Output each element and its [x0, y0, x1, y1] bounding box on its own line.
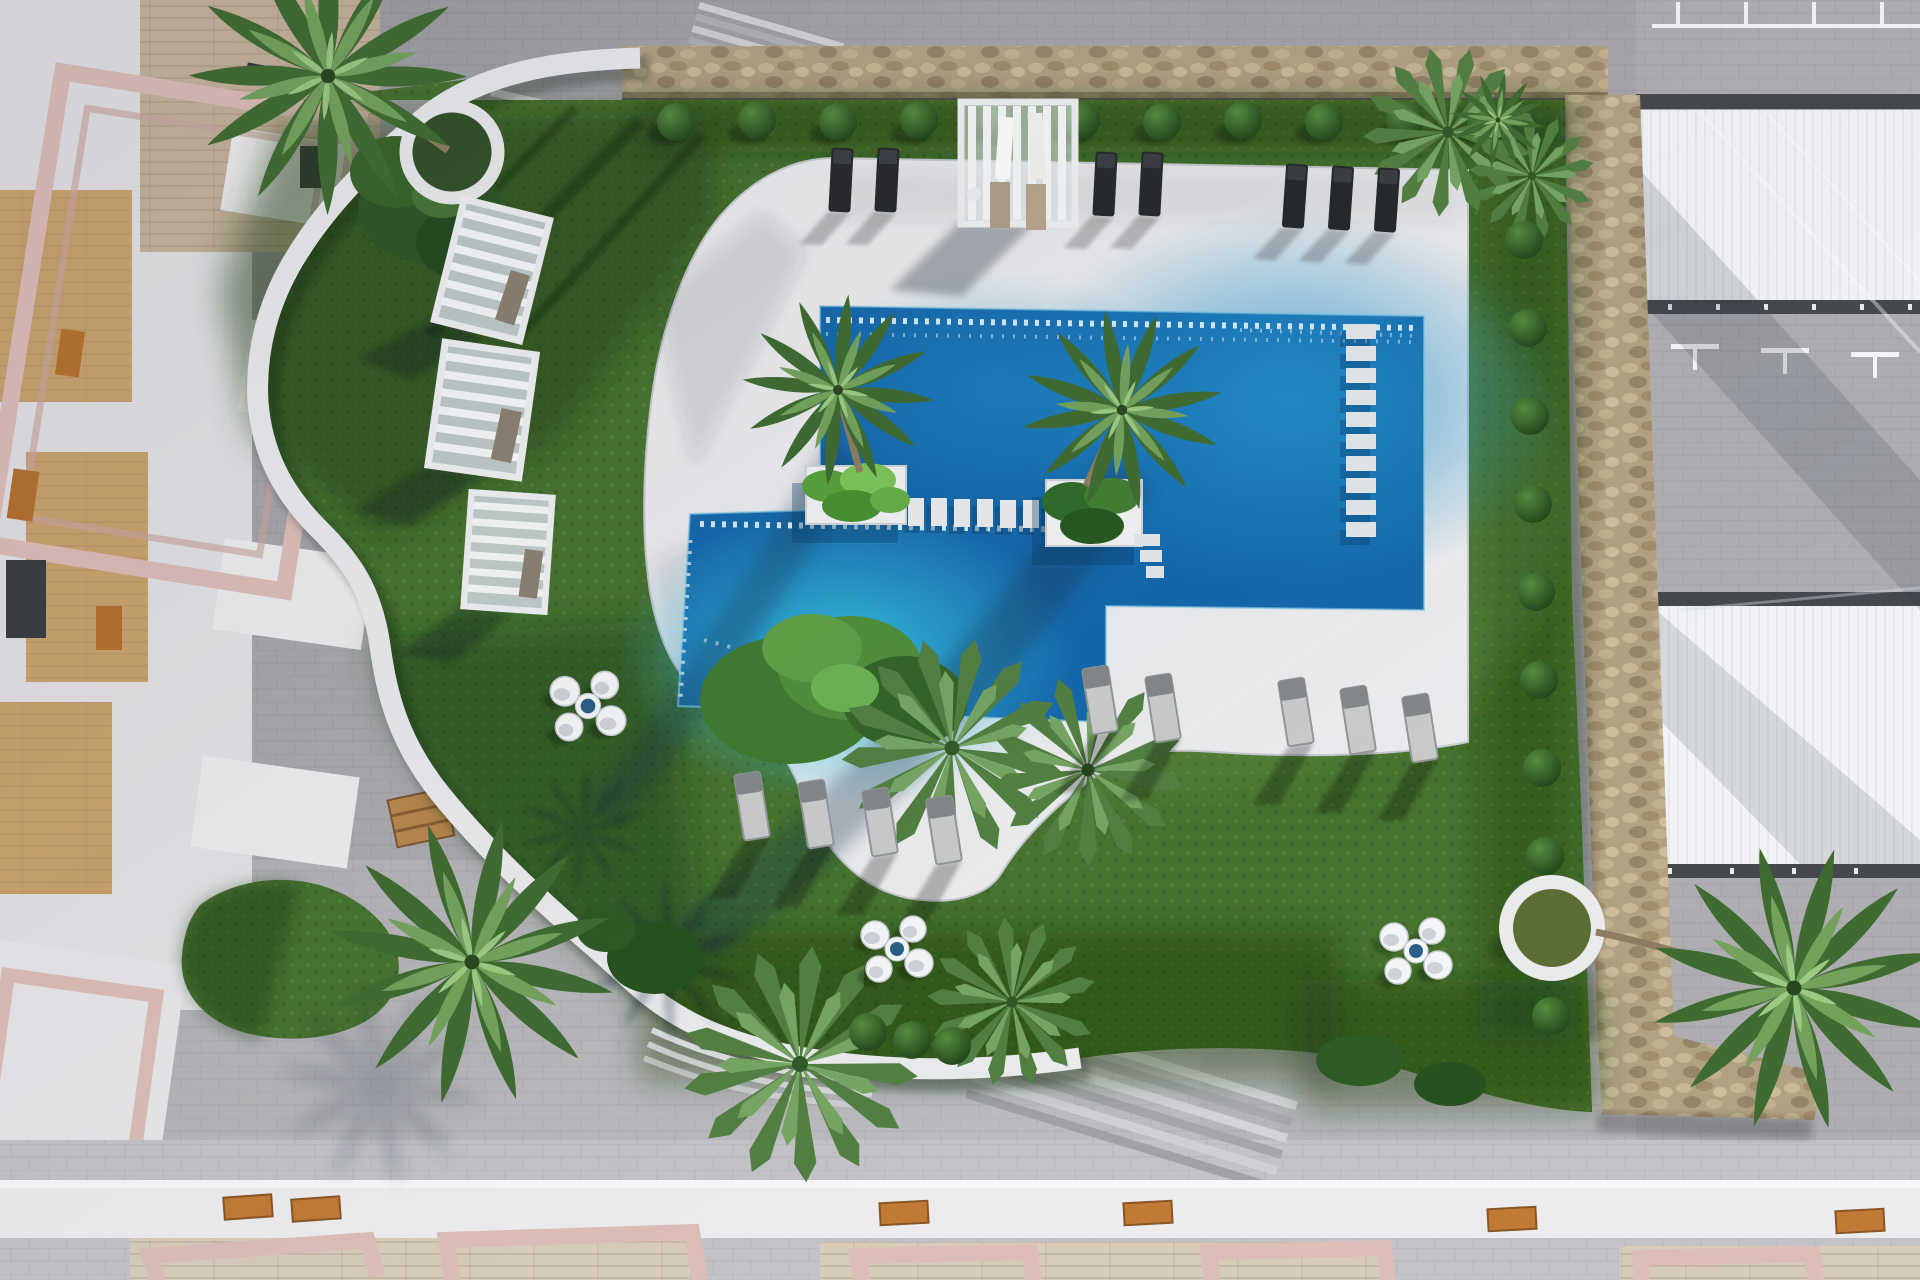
render-canvas [0, 0, 1920, 1280]
light-vignette [0, 0, 1920, 1280]
aerial-pool-courtyard-render [0, 0, 1920, 1280]
